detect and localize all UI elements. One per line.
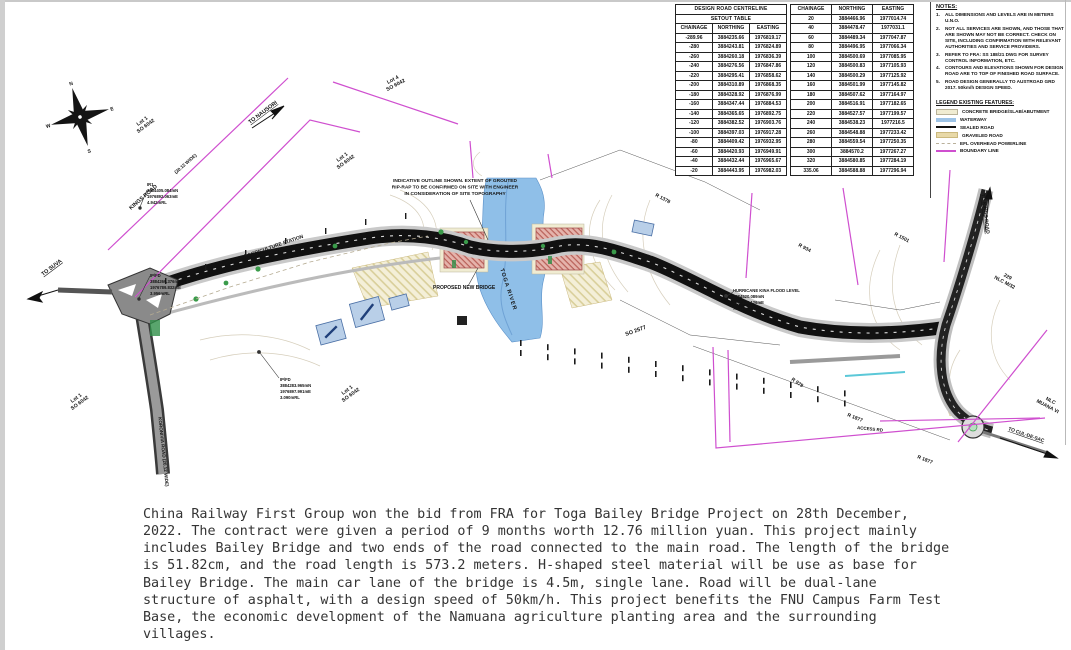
table-row: -2603884260.181976836.39 bbox=[676, 52, 787, 62]
column-header: CHAINAGE bbox=[676, 24, 713, 34]
table-row: 203884466.961977014.74 bbox=[791, 14, 914, 24]
table-cell: 1976932.95 bbox=[750, 138, 787, 148]
page-edge-left bbox=[0, 0, 5, 650]
table-cell: 3884365.65 bbox=[713, 109, 750, 119]
table-cell: 240 bbox=[791, 119, 832, 129]
table-cell: 1977284.19 bbox=[873, 157, 914, 167]
legend-label: SEALED ROAD bbox=[960, 125, 994, 130]
svg-text:E: E bbox=[110, 106, 115, 113]
label-lot1-mid: Lot 1SO 6042 bbox=[332, 149, 356, 171]
note-number: 4. bbox=[936, 65, 945, 77]
table-cell: 120 bbox=[791, 62, 832, 72]
table-row: 1403884500.291977125.92 bbox=[791, 71, 914, 81]
table-cell: 1977233.42 bbox=[873, 128, 914, 138]
table-cell: 1976876.99 bbox=[750, 90, 787, 100]
table-cell: 3884420.93 bbox=[713, 147, 750, 157]
legend-row: BOUNDARY LINE bbox=[936, 148, 1064, 153]
table-cell: -160 bbox=[676, 100, 713, 110]
table-cell: 20 bbox=[791, 14, 832, 24]
table-cell: 1976892.75 bbox=[750, 109, 787, 119]
table-cell: 3884432.44 bbox=[713, 157, 750, 167]
table-cell: 3884328.92 bbox=[713, 90, 750, 100]
setout-table-1: DESIGN ROAD CENTRELINE SETOUT TABLE CHAI… bbox=[675, 4, 787, 176]
table-cell: 3884478.47 bbox=[832, 24, 873, 34]
legend-row: GRAVELED ROAD bbox=[936, 132, 1064, 138]
setout-table-2: CHAINAGENORTHINGEASTING 203884466.961977… bbox=[790, 4, 914, 176]
table-cell: 1977182.65 bbox=[873, 100, 914, 110]
table-row: -1003884397.031976917.28 bbox=[676, 128, 787, 138]
table-cell: 3884501.99 bbox=[832, 81, 873, 91]
table-cell: 40 bbox=[791, 24, 832, 34]
table-row: -1803884328.921976876.99 bbox=[676, 90, 787, 100]
note-item: 5.ROAD DESIGN GENERALLY TO AUSTROAD GRD … bbox=[936, 79, 1064, 91]
label-r-1501: R 1501 bbox=[893, 231, 910, 244]
table-row: -2803884243.811976824.89 bbox=[676, 43, 787, 53]
table-row: 2403884538.231977216.5 bbox=[791, 119, 914, 129]
table-cell: -180 bbox=[676, 90, 713, 100]
table-row: -603884420.931976949.91 bbox=[676, 147, 787, 157]
legend-title: LEGEND EXISTING FEATURES: bbox=[936, 100, 1064, 106]
table-cell: 3884243.81 bbox=[713, 43, 750, 53]
table-cell: -280 bbox=[676, 43, 713, 53]
label-to-suva: TO SUVA bbox=[41, 258, 64, 277]
table-cell: -140 bbox=[676, 109, 713, 119]
table-cell: 300 bbox=[791, 147, 832, 157]
table-row: 803884496.951977066.34 bbox=[791, 43, 914, 53]
note-text: ALL DIMENSIONS AND LEVELS ARE IN METERS … bbox=[945, 12, 1064, 24]
label-r-1378: R 1378 bbox=[654, 192, 671, 205]
label-r-1877-b: R 1877 bbox=[916, 454, 933, 466]
table-cell: 220 bbox=[791, 109, 832, 119]
table-row: -2403884276.561976847.86 bbox=[676, 62, 787, 72]
label-r-1877-a: R 1877 bbox=[846, 412, 863, 424]
table-cell: 1977031.1 bbox=[873, 24, 914, 34]
label-lot1-s: Lot 1SO 6042 bbox=[337, 382, 361, 404]
table-row: 1203884500.831977105.93 bbox=[791, 62, 914, 72]
label-nlc-229: 229NLC M/32 bbox=[993, 269, 1019, 291]
legend-panel: LEGEND EXISTING FEATURES: CONCRETE BRIDG… bbox=[936, 100, 1064, 156]
table-cell: 3884489.34 bbox=[832, 33, 873, 43]
drawing-sheet: N E S W TO SUVA TO NAUSORI KINGS ROAD (2… bbox=[0, 0, 1071, 650]
label-kings-road-width: (20.12 WIDE) bbox=[173, 152, 198, 174]
table-row: -203884443.951976982.03 bbox=[676, 166, 787, 176]
table-cell: 1976858.62 bbox=[750, 71, 787, 81]
table-cell: 3884276.56 bbox=[713, 62, 750, 72]
table-cell: 3884382.52 bbox=[713, 119, 750, 129]
table-cell: 3884409.42 bbox=[713, 138, 750, 148]
table-cell: 1977085.95 bbox=[873, 52, 914, 62]
table-cell: 180 bbox=[791, 90, 832, 100]
note-text: CONTOURS AND ELEVATIONS SHOWN FOR DESIGN… bbox=[945, 65, 1064, 77]
table-row: 403884478.471977031.1 bbox=[791, 24, 914, 34]
table-cell: 1976836.39 bbox=[750, 52, 787, 62]
table-cell: 1977145.82 bbox=[873, 81, 914, 91]
waterway-swatch bbox=[936, 118, 956, 122]
table-cell: 3884580.85 bbox=[832, 157, 873, 167]
note-item: 1.ALL DIMENSIONS AND LEVELS ARE IN METER… bbox=[936, 12, 1064, 24]
boundary-swatch bbox=[936, 150, 956, 152]
legend-row: CONCRETE BRIDGE/SLAB/ABUTMENT bbox=[936, 109, 1064, 115]
table-cell: -220 bbox=[676, 71, 713, 81]
table-row: -2003884310.891976868.35 bbox=[676, 81, 787, 91]
table-cell: 320 bbox=[791, 157, 832, 167]
table-cell: 1977164.97 bbox=[873, 90, 914, 100]
table-cell: 100 bbox=[791, 52, 832, 62]
label-ir1: IR13884405.084mN1976892.063mE4.942mRL bbox=[147, 182, 178, 205]
table-cell: 200 bbox=[791, 100, 832, 110]
table-cell: 335.06 bbox=[791, 166, 832, 176]
legend-label: CONCRETE BRIDGE/SLAB/ABUTMENT bbox=[962, 109, 1050, 114]
table-header-row: CHAINAGENORTHINGEASTING bbox=[676, 24, 787, 34]
table-cell: 3884397.03 bbox=[713, 128, 750, 138]
table-row: 3203884580.851977284.19 bbox=[791, 157, 914, 167]
legend-label: WATERWAY bbox=[960, 117, 987, 122]
table-cell: -240 bbox=[676, 62, 713, 72]
note-number: 3. bbox=[936, 52, 945, 64]
note-item: 2.NOT ALL SERVICES ARE SHOWN, AND THOSE … bbox=[936, 26, 1064, 50]
table-cell: 3884235.66 bbox=[713, 33, 750, 43]
label-so-2577: SO 2577 bbox=[625, 325, 647, 338]
note-number: 2. bbox=[936, 26, 945, 50]
label-lot4: Lot 4SO 6042 bbox=[383, 73, 407, 93]
table-cell: 1976982.03 bbox=[750, 166, 787, 176]
graveled-swatch bbox=[936, 132, 958, 138]
table-cell: 3884347.44 bbox=[713, 100, 750, 110]
table-cell: 1977199.57 bbox=[873, 109, 914, 119]
concrete-swatch bbox=[936, 109, 958, 115]
table-cell: 3884496.95 bbox=[832, 43, 873, 53]
legend-label: GRAVELED ROAD bbox=[962, 133, 1003, 138]
label-proposed-new-bridge: PROPOSED NEW BRIDGE bbox=[433, 285, 496, 291]
table-cell: 1976824.89 bbox=[750, 43, 787, 53]
legend-row: SEALED ROAD bbox=[936, 125, 1064, 130]
table-cell: 1977014.74 bbox=[873, 14, 914, 24]
table-subtitle: SETOUT TABLE bbox=[676, 14, 787, 24]
label-indicative-note: INDICATIVE OUTLINE SHOWN. EXTENT OF GROU… bbox=[392, 178, 519, 197]
table-cell: 3884527.57 bbox=[832, 109, 873, 119]
table-cell: 1976917.28 bbox=[750, 128, 787, 138]
table-cell: 140 bbox=[791, 71, 832, 81]
table-cell: 3884570.2 bbox=[832, 147, 873, 157]
table-cell: -289.96 bbox=[676, 33, 713, 43]
table-cell: 1977105.93 bbox=[873, 62, 914, 72]
table-cell: 1976903.76 bbox=[750, 119, 787, 129]
table-cell: 3884310.89 bbox=[713, 81, 750, 91]
table-cell: 1976819.17 bbox=[750, 33, 787, 43]
table-cell: 1977216.5 bbox=[873, 119, 914, 129]
label-r-934: R 934 bbox=[797, 242, 812, 254]
table-cell: 3884559.54 bbox=[832, 138, 873, 148]
table-row: 1003884500.691977085.95 bbox=[791, 52, 914, 62]
note-number: 5. bbox=[936, 79, 945, 91]
stream-east bbox=[845, 372, 905, 376]
table-header-row: CHAINAGENORTHINGEASTING bbox=[791, 5, 914, 15]
legend-label: EFL OVERHEAD POWERLINE bbox=[960, 141, 1026, 146]
svg-text:W: W bbox=[45, 123, 51, 130]
table-cell: 3884516.91 bbox=[832, 100, 873, 110]
table-cell: 3884500.83 bbox=[832, 62, 873, 72]
note-text: ROAD DESIGN GENERALLY TO AUSTROAD GRD 20… bbox=[945, 79, 1064, 91]
note-item: 4.CONTOURS AND ELEVATIONS SHOWN FOR DESI… bbox=[936, 65, 1064, 77]
table-cell: 3884500.69 bbox=[832, 52, 873, 62]
table-cell: 1976949.91 bbox=[750, 147, 787, 157]
table-cell: 1976965.67 bbox=[750, 157, 787, 167]
compass-icon: N E S W bbox=[36, 72, 124, 164]
table-cell: 1976847.86 bbox=[750, 62, 787, 72]
table-cell: 1976868.35 bbox=[750, 81, 787, 91]
note-text: REFER TO FRA: SS 188/21 DWG FOR SURVEY C… bbox=[945, 52, 1064, 64]
table-row: 1603884501.991977145.82 bbox=[791, 81, 914, 91]
table-cell: 1977125.92 bbox=[873, 71, 914, 81]
table-row: 2203884527.571977199.57 bbox=[791, 109, 914, 119]
table-cell: 3884588.88 bbox=[832, 166, 873, 176]
svg-text:N: N bbox=[69, 81, 74, 88]
table-cell: 3884507.62 bbox=[832, 90, 873, 100]
kings-road-link bbox=[941, 190, 1048, 453]
table-cell: 3884443.95 bbox=[713, 166, 750, 176]
note-number: 1. bbox=[936, 12, 945, 24]
table-cell: 1977267.27 bbox=[873, 147, 914, 157]
label-lot1-sw: Lot 1SO 6042 bbox=[66, 390, 90, 412]
table-row: -1403884365.651976892.75 bbox=[676, 109, 787, 119]
table-cell: 3884500.29 bbox=[832, 71, 873, 81]
table-row: 2603884548.881977233.42 bbox=[791, 128, 914, 138]
legend-label: BOUNDARY LINE bbox=[960, 148, 999, 153]
column-header: CHAINAGE bbox=[791, 5, 832, 15]
column-header: NORTHING bbox=[832, 5, 873, 15]
table-title: DESIGN ROAD CENTRELINE bbox=[676, 5, 787, 15]
project-description: China Railway First Group won the bid fr… bbox=[143, 506, 951, 643]
note-text: NOT ALL SERVICES ARE SHOWN, AND THOSE TH… bbox=[945, 26, 1064, 50]
table-row: -403884432.441976965.67 bbox=[676, 157, 787, 167]
note-item: 3.REFER TO FRA: SS 188/21 DWG FOR SURVEY… bbox=[936, 52, 1064, 64]
svg-text:S: S bbox=[87, 148, 92, 155]
label-ipfd-south: IP/FD3884283.965mN1976897.991mE3.090mRL bbox=[280, 377, 311, 400]
table-cell: 60 bbox=[791, 33, 832, 43]
column-header: EASTING bbox=[750, 24, 787, 34]
table-cell: -60 bbox=[676, 147, 713, 157]
notes-list: 1.ALL DIMENSIONS AND LEVELS ARE IN METER… bbox=[936, 12, 1064, 91]
table-cell: -40 bbox=[676, 157, 713, 167]
table-cell: 3884260.18 bbox=[713, 52, 750, 62]
table-cell: 160 bbox=[791, 81, 832, 91]
table-row: -289.963884235.661976819.17 bbox=[676, 33, 787, 43]
table-row: 2003884516.911977182.65 bbox=[791, 100, 914, 110]
notes-panel: NOTES: 1.ALL DIMENSIONS AND LEVELS ARE I… bbox=[936, 4, 1064, 93]
table-cell: 3884548.88 bbox=[832, 128, 873, 138]
legend-row: WATERWAY bbox=[936, 117, 1064, 122]
table-cell: 1977250.35 bbox=[873, 138, 914, 148]
page-edge-right bbox=[1065, 0, 1066, 445]
table-cell: 1977066.34 bbox=[873, 43, 914, 53]
efl-swatch bbox=[936, 143, 956, 144]
table-cell: -120 bbox=[676, 119, 713, 129]
legend-list: CONCRETE BRIDGE/SLAB/ABUTMENTWATERWAYSEA… bbox=[936, 109, 1064, 154]
table-cell: 3884538.23 bbox=[832, 119, 873, 129]
table-row: 2803884559.541977250.35 bbox=[791, 138, 914, 148]
table-cell: 1977296.94 bbox=[873, 166, 914, 176]
label-r-979: R 979 bbox=[790, 377, 805, 390]
table-cell: -200 bbox=[676, 81, 713, 91]
access-track-east bbox=[790, 356, 900, 362]
table-row: -2203884295.411976858.62 bbox=[676, 71, 787, 81]
column-header: NORTHING bbox=[713, 24, 750, 34]
table-cell: 280 bbox=[791, 138, 832, 148]
legend-row: EFL OVERHEAD POWERLINE bbox=[936, 141, 1064, 146]
table-row: 603884489.341977047.87 bbox=[791, 33, 914, 43]
label-access-rd: ACCESS RD bbox=[857, 425, 883, 433]
label-lot1-nw: Lot 1SO 6042 bbox=[132, 113, 156, 135]
table-cell: -80 bbox=[676, 138, 713, 148]
table-row: -1203884382.521976903.76 bbox=[676, 119, 787, 129]
table-cell: -20 bbox=[676, 166, 713, 176]
column-header: EASTING bbox=[873, 5, 914, 15]
table-cell: -100 bbox=[676, 128, 713, 138]
table-row: 1803884507.621977164.97 bbox=[791, 90, 914, 100]
table-cell: 260 bbox=[791, 128, 832, 138]
table-cell: 3884295.41 bbox=[713, 71, 750, 81]
sealed-swatch bbox=[936, 126, 956, 129]
table-cell: 1976884.53 bbox=[750, 100, 787, 110]
table-cell: 3884466.96 bbox=[832, 14, 873, 24]
table-row: -1603884347.441976884.53 bbox=[676, 100, 787, 110]
table-cell: 80 bbox=[791, 43, 832, 53]
notes-title: NOTES: bbox=[936, 4, 1064, 10]
table-row: 3003884570.21977267.27 bbox=[791, 147, 914, 157]
table-cell: -260 bbox=[676, 52, 713, 62]
table-row: 335.063884588.881977296.94 bbox=[791, 166, 914, 176]
label-nlc-muana: NLCMUANA VI bbox=[1035, 393, 1063, 416]
table-row: -803884409.421976932.95 bbox=[676, 138, 787, 148]
table-cell: 1977047.87 bbox=[873, 33, 914, 43]
